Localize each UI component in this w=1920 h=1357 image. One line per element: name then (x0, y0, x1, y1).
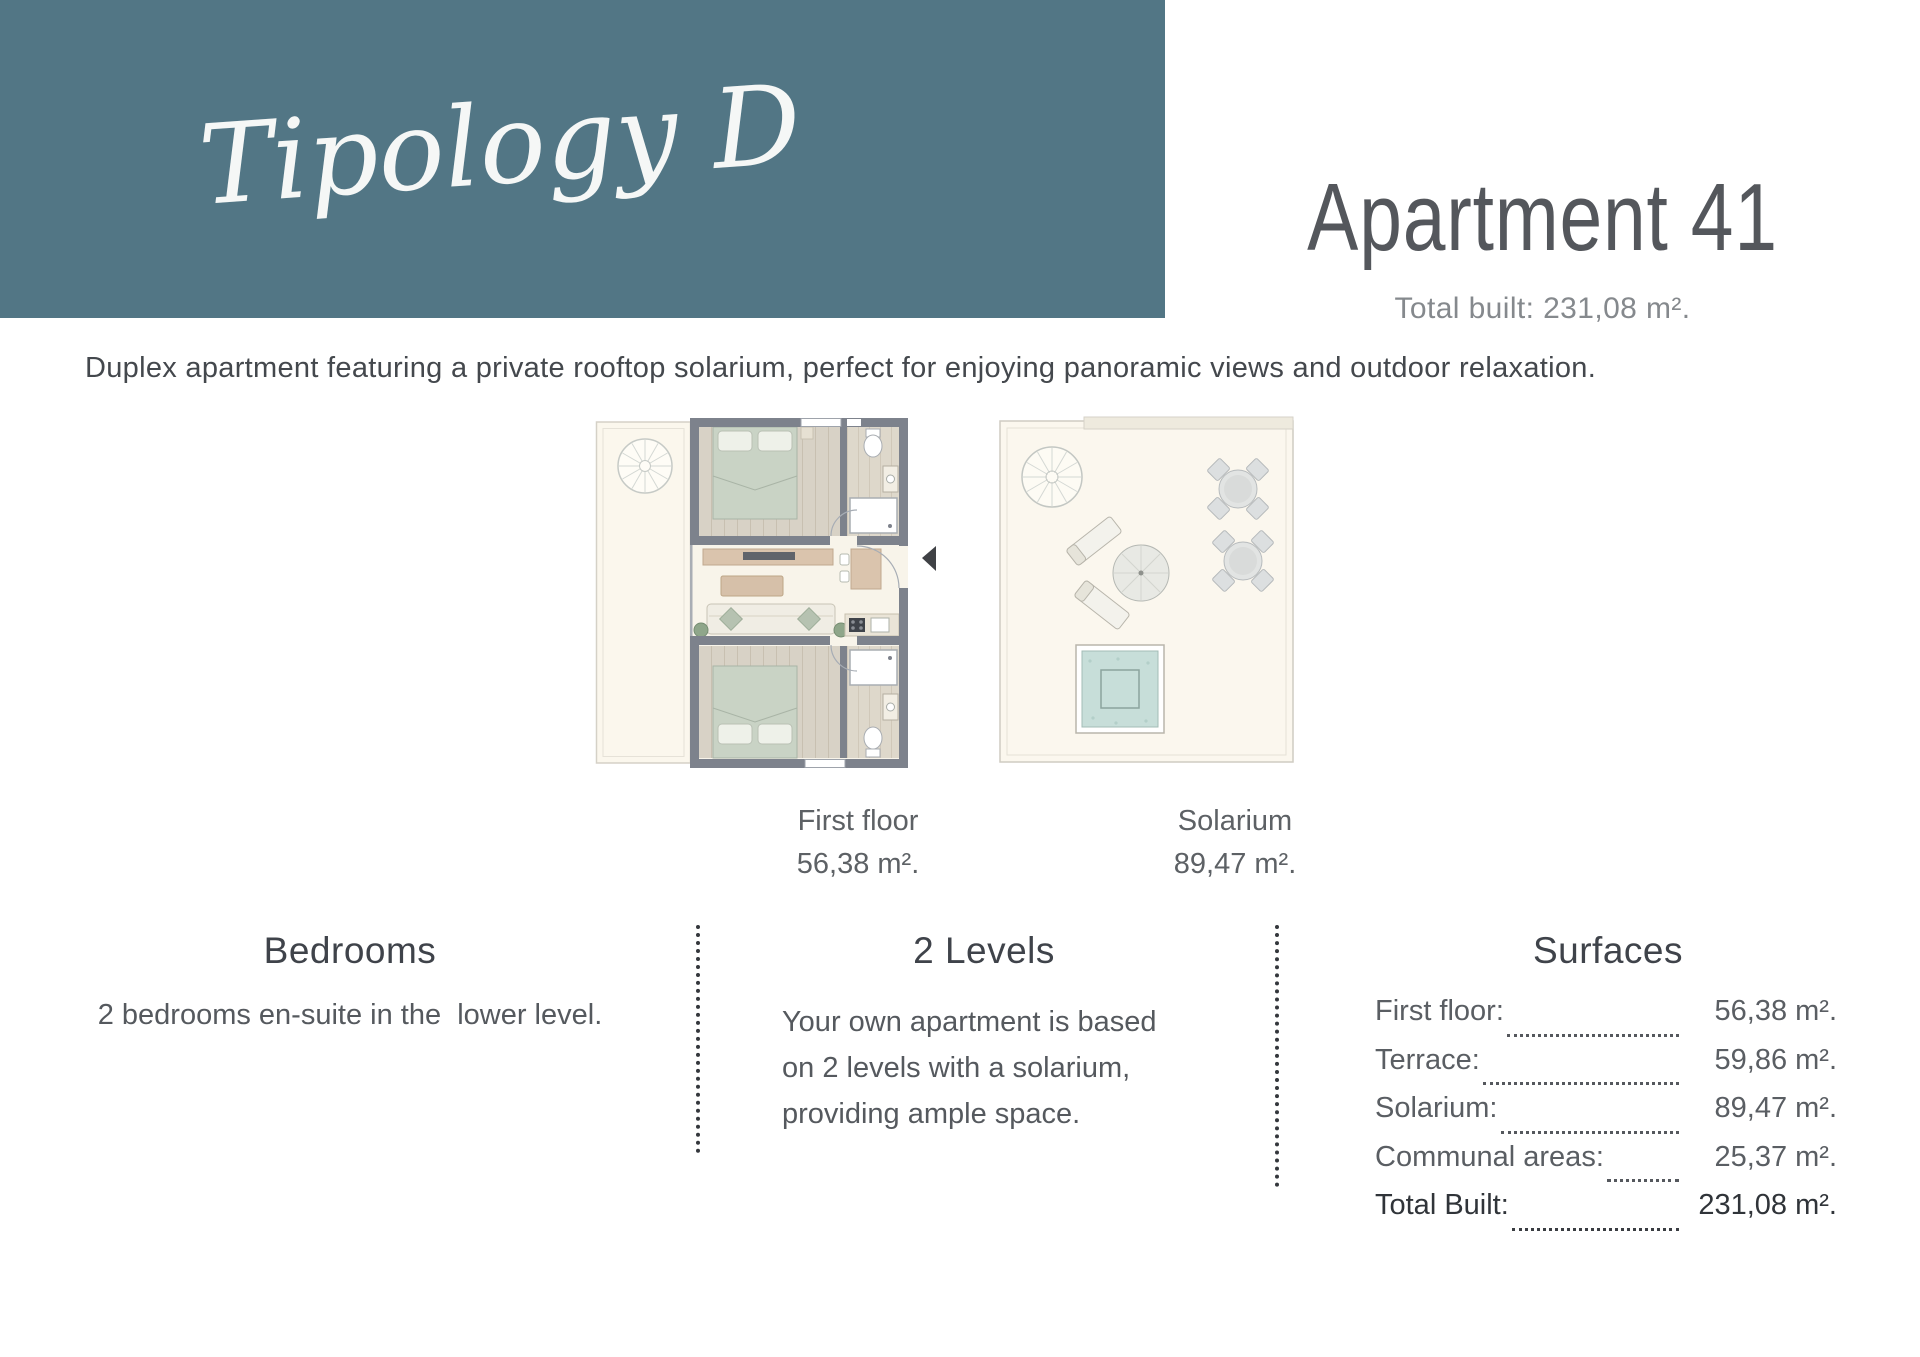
dotted-leader (1483, 1082, 1679, 1085)
sink-icon (883, 466, 898, 492)
surface-label: Terrace: (1375, 1044, 1480, 1077)
surfaces-table: First floor: 56,38 m². Terrace: 59,86 m²… (1375, 995, 1837, 1238)
window-opening (847, 419, 861, 426)
surface-label: Total Built: (1375, 1189, 1509, 1222)
surfaces-row: Communal areas: 25,37 m². (1375, 1141, 1837, 1190)
dotted-leader (1507, 1034, 1679, 1037)
toilet-icon (864, 727, 882, 757)
plant-icon (694, 623, 708, 637)
coffee-table-icon (721, 576, 783, 596)
parasol-icon (1113, 545, 1169, 601)
typology-title: Tipology D (183, 9, 818, 282)
window-icon (801, 419, 841, 427)
solarium-plan (998, 413, 1295, 768)
dotted-divider (1275, 925, 1279, 1187)
first-floor-label: First floor 56,38 m². (703, 800, 1013, 886)
kitchen-counter-icon (845, 614, 899, 636)
spiral-staircase-icon (618, 439, 672, 493)
surface-value: 89,47 m². (1687, 1092, 1837, 1125)
surfaces-heading: Surfaces (1318, 930, 1898, 972)
surface-value: 25,37 m². (1687, 1141, 1837, 1174)
dotted-leader (1607, 1179, 1679, 1182)
sofa-icon (707, 604, 835, 634)
bed-icon (713, 666, 797, 758)
solarium-label: Solarium 89,47 m². (1080, 800, 1390, 886)
apartment-title: Apartment 41 (1241, 170, 1845, 266)
surface-label: Solarium: (1375, 1092, 1498, 1125)
entrance-arrow-icon (922, 546, 936, 571)
window-icon (805, 760, 845, 768)
surface-value: 231,08 m². (1687, 1189, 1837, 1222)
description-text: Duplex apartment featuring a private roo… (85, 352, 1845, 385)
solarium-plan-drawing (998, 413, 1295, 768)
surface-value: 59,86 m². (1687, 1044, 1837, 1077)
first-floor-plan-drawing (595, 418, 940, 768)
bedrooms-body: 2 bedrooms en-suite in the lower level. (60, 999, 640, 1032)
tv-console-icon (703, 549, 833, 565)
shower-icon (850, 650, 897, 685)
dotted-leader (1512, 1228, 1679, 1231)
bed-icon (713, 427, 797, 519)
jacuzzi-icon (1076, 645, 1164, 733)
first-floor-label-name: First floor (703, 800, 1013, 843)
first-floor-label-area: 56,38 m². (703, 843, 1013, 886)
levels-heading: 2 Levels (724, 930, 1244, 972)
surfaces-row: Solarium: 89,47 m². (1375, 1092, 1837, 1141)
spiral-staircase-icon (1022, 447, 1082, 507)
brochure-page: Tipology D Apartment 41 Total built: 231… (0, 0, 1920, 1357)
first-floor-plan (595, 418, 940, 768)
surfaces-row-total: Total Built: 231,08 m². (1375, 1189, 1837, 1238)
bedrooms-heading: Bedrooms (60, 930, 640, 972)
total-built-subtitle: Total built: 231,08 m². (1165, 292, 1920, 326)
solarium-label-name: Solarium (1080, 800, 1390, 843)
sink-icon (883, 694, 898, 720)
dotted-leader (1501, 1131, 1680, 1134)
surface-value: 56,38 m². (1687, 995, 1837, 1028)
nightstand-icon (801, 427, 813, 439)
surface-label: First floor: (1375, 995, 1504, 1028)
shower-icon (850, 498, 897, 533)
solarium-label-area: 89,47 m². (1080, 843, 1390, 886)
dotted-divider (696, 925, 700, 1153)
surfaces-row: Terrace: 59,86 m². (1375, 1044, 1837, 1093)
surface-label: Communal areas: (1375, 1141, 1604, 1174)
levels-body: Your own apartment is based on 2 levels … (782, 999, 1184, 1137)
surfaces-row: First floor: 56,38 m². (1375, 995, 1837, 1044)
toilet-icon (864, 429, 882, 457)
